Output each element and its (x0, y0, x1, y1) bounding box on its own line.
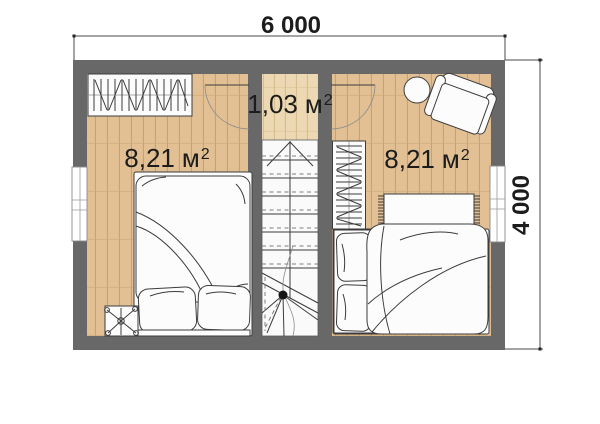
area-sup: 2 (324, 91, 333, 109)
staircase-icon (262, 140, 318, 336)
area-unit: м (442, 144, 460, 174)
dimension-height-label: 4 000 (508, 105, 536, 305)
area-sup: 2 (201, 145, 210, 163)
area-unit: м (305, 89, 323, 119)
plant-icon (105, 306, 139, 336)
bed-left-icon (134, 172, 252, 336)
bed-right-icon (333, 224, 489, 334)
area-value: 8,21 (124, 143, 175, 173)
pillows (138, 285, 251, 333)
wardrobe-right-icon (333, 141, 366, 229)
window-right-icon (490, 166, 505, 242)
stair-newel-post (279, 291, 288, 300)
rug-icon (378, 194, 480, 228)
side-table-icon (404, 77, 430, 103)
area-sup: 2 (461, 146, 470, 164)
hallway-area-label: 1,03м2 (230, 89, 350, 120)
bedroom-right-area-label: 8,21м2 (367, 144, 487, 175)
dimension-width-label: 6 000 (191, 12, 391, 40)
bed-headboard (136, 330, 250, 336)
bedroom-left-area-label: 8,21м2 (107, 143, 227, 174)
duvet (367, 224, 488, 334)
duvet (136, 176, 250, 302)
area-value: 1,03 (247, 89, 298, 119)
floor-plan-canvas: 6 000 4 000 8,21м2 1,03м2 8,21м2 (0, 0, 600, 424)
wardrobe-left-icon (88, 74, 192, 116)
window-left-icon (72, 167, 87, 241)
area-unit: м (182, 143, 200, 173)
area-value: 8,21 (384, 144, 435, 174)
